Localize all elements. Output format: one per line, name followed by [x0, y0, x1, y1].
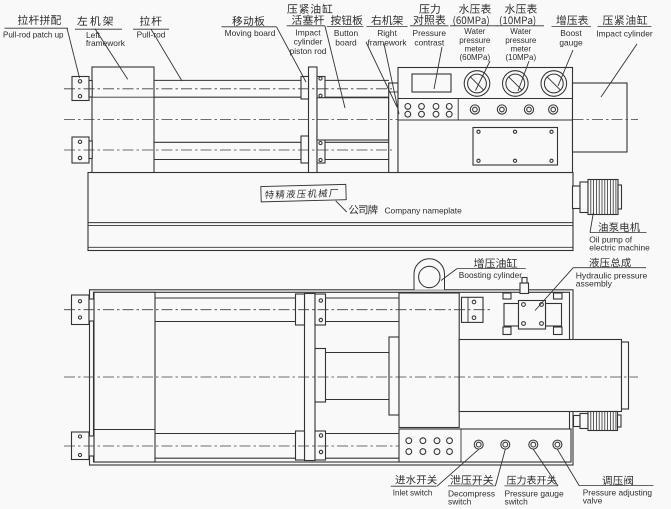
svg-text:board: board: [335, 37, 357, 47]
svg-text:electric machine: electric machine: [589, 242, 650, 252]
svg-text:Inlet switch: Inlet switch: [393, 488, 433, 497]
svg-text:Moving board: Moving board: [225, 28, 276, 38]
svg-text:gauge: gauge: [559, 37, 583, 47]
svg-text:Boosting cylinder: Boosting cylinder: [459, 270, 522, 280]
svg-text:piston rod: piston rod: [290, 46, 327, 56]
svg-text:Pull-rod: Pull-rod: [137, 29, 166, 39]
svg-text:valve: valve: [583, 495, 603, 505]
svg-text:Company nameplate: Company nameplate: [385, 206, 463, 216]
svg-text:switch: switch: [448, 496, 472, 506]
svg-text:contrast: contrast: [414, 37, 444, 47]
svg-text:framework: framework: [367, 37, 407, 47]
svg-text:Pull-rod patch up: Pull-rod patch up: [3, 30, 64, 39]
svg-text:framework: framework: [86, 38, 126, 48]
svg-text:(60MPa): (60MPa): [459, 53, 490, 62]
svg-text:switch: switch: [505, 496, 529, 506]
svg-text:Impact cylinder: Impact cylinder: [596, 29, 653, 39]
svg-text:assembly: assembly: [576, 279, 613, 289]
svg-text:(10MPa): (10MPa): [505, 53, 536, 62]
